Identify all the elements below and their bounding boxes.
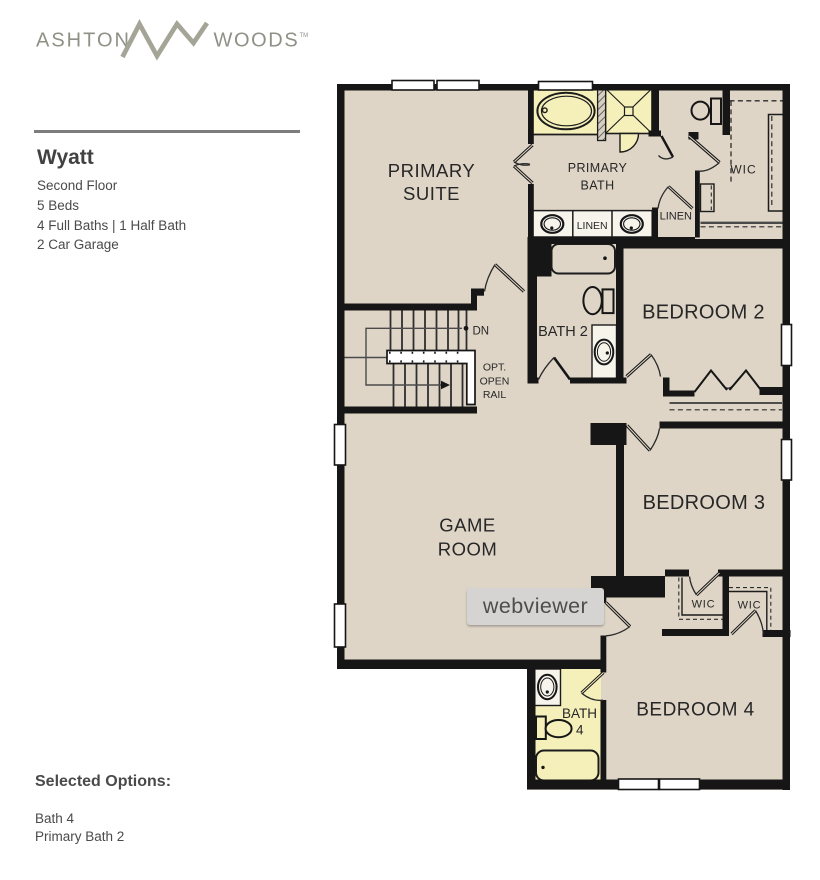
svg-text:LINEN: LINEN [660,211,692,223]
svg-text:WIC: WIC [692,599,716,611]
svg-text:BEDROOM 3: BEDROOM 3 [643,492,766,514]
svg-text:OPEN: OPEN [480,376,510,388]
svg-text:BATH: BATH [562,706,597,721]
svg-text:DN: DN [473,326,490,338]
svg-text:RAIL: RAIL [483,389,507,401]
svg-text:4: 4 [576,723,584,738]
svg-text:PRIMARY: PRIMARY [388,160,475,181]
svg-text:BEDROOM 4: BEDROOM 4 [636,700,755,721]
svg-text:SUITE: SUITE [403,183,460,204]
svg-text:BEDROOM 2: BEDROOM 2 [642,302,765,324]
svg-text:WIC: WIC [738,600,762,612]
svg-text:ROOM: ROOM [438,539,498,560]
svg-text:GAME: GAME [439,515,495,536]
svg-text:PRIMARY: PRIMARY [568,161,628,175]
svg-text:BATH: BATH [580,179,614,193]
svg-text:LINEN: LINEN [577,220,608,232]
svg-text:WIC: WIC [730,163,756,177]
svg-text:BATH 2: BATH 2 [538,324,588,340]
svg-text:OPT.: OPT. [483,362,506,374]
